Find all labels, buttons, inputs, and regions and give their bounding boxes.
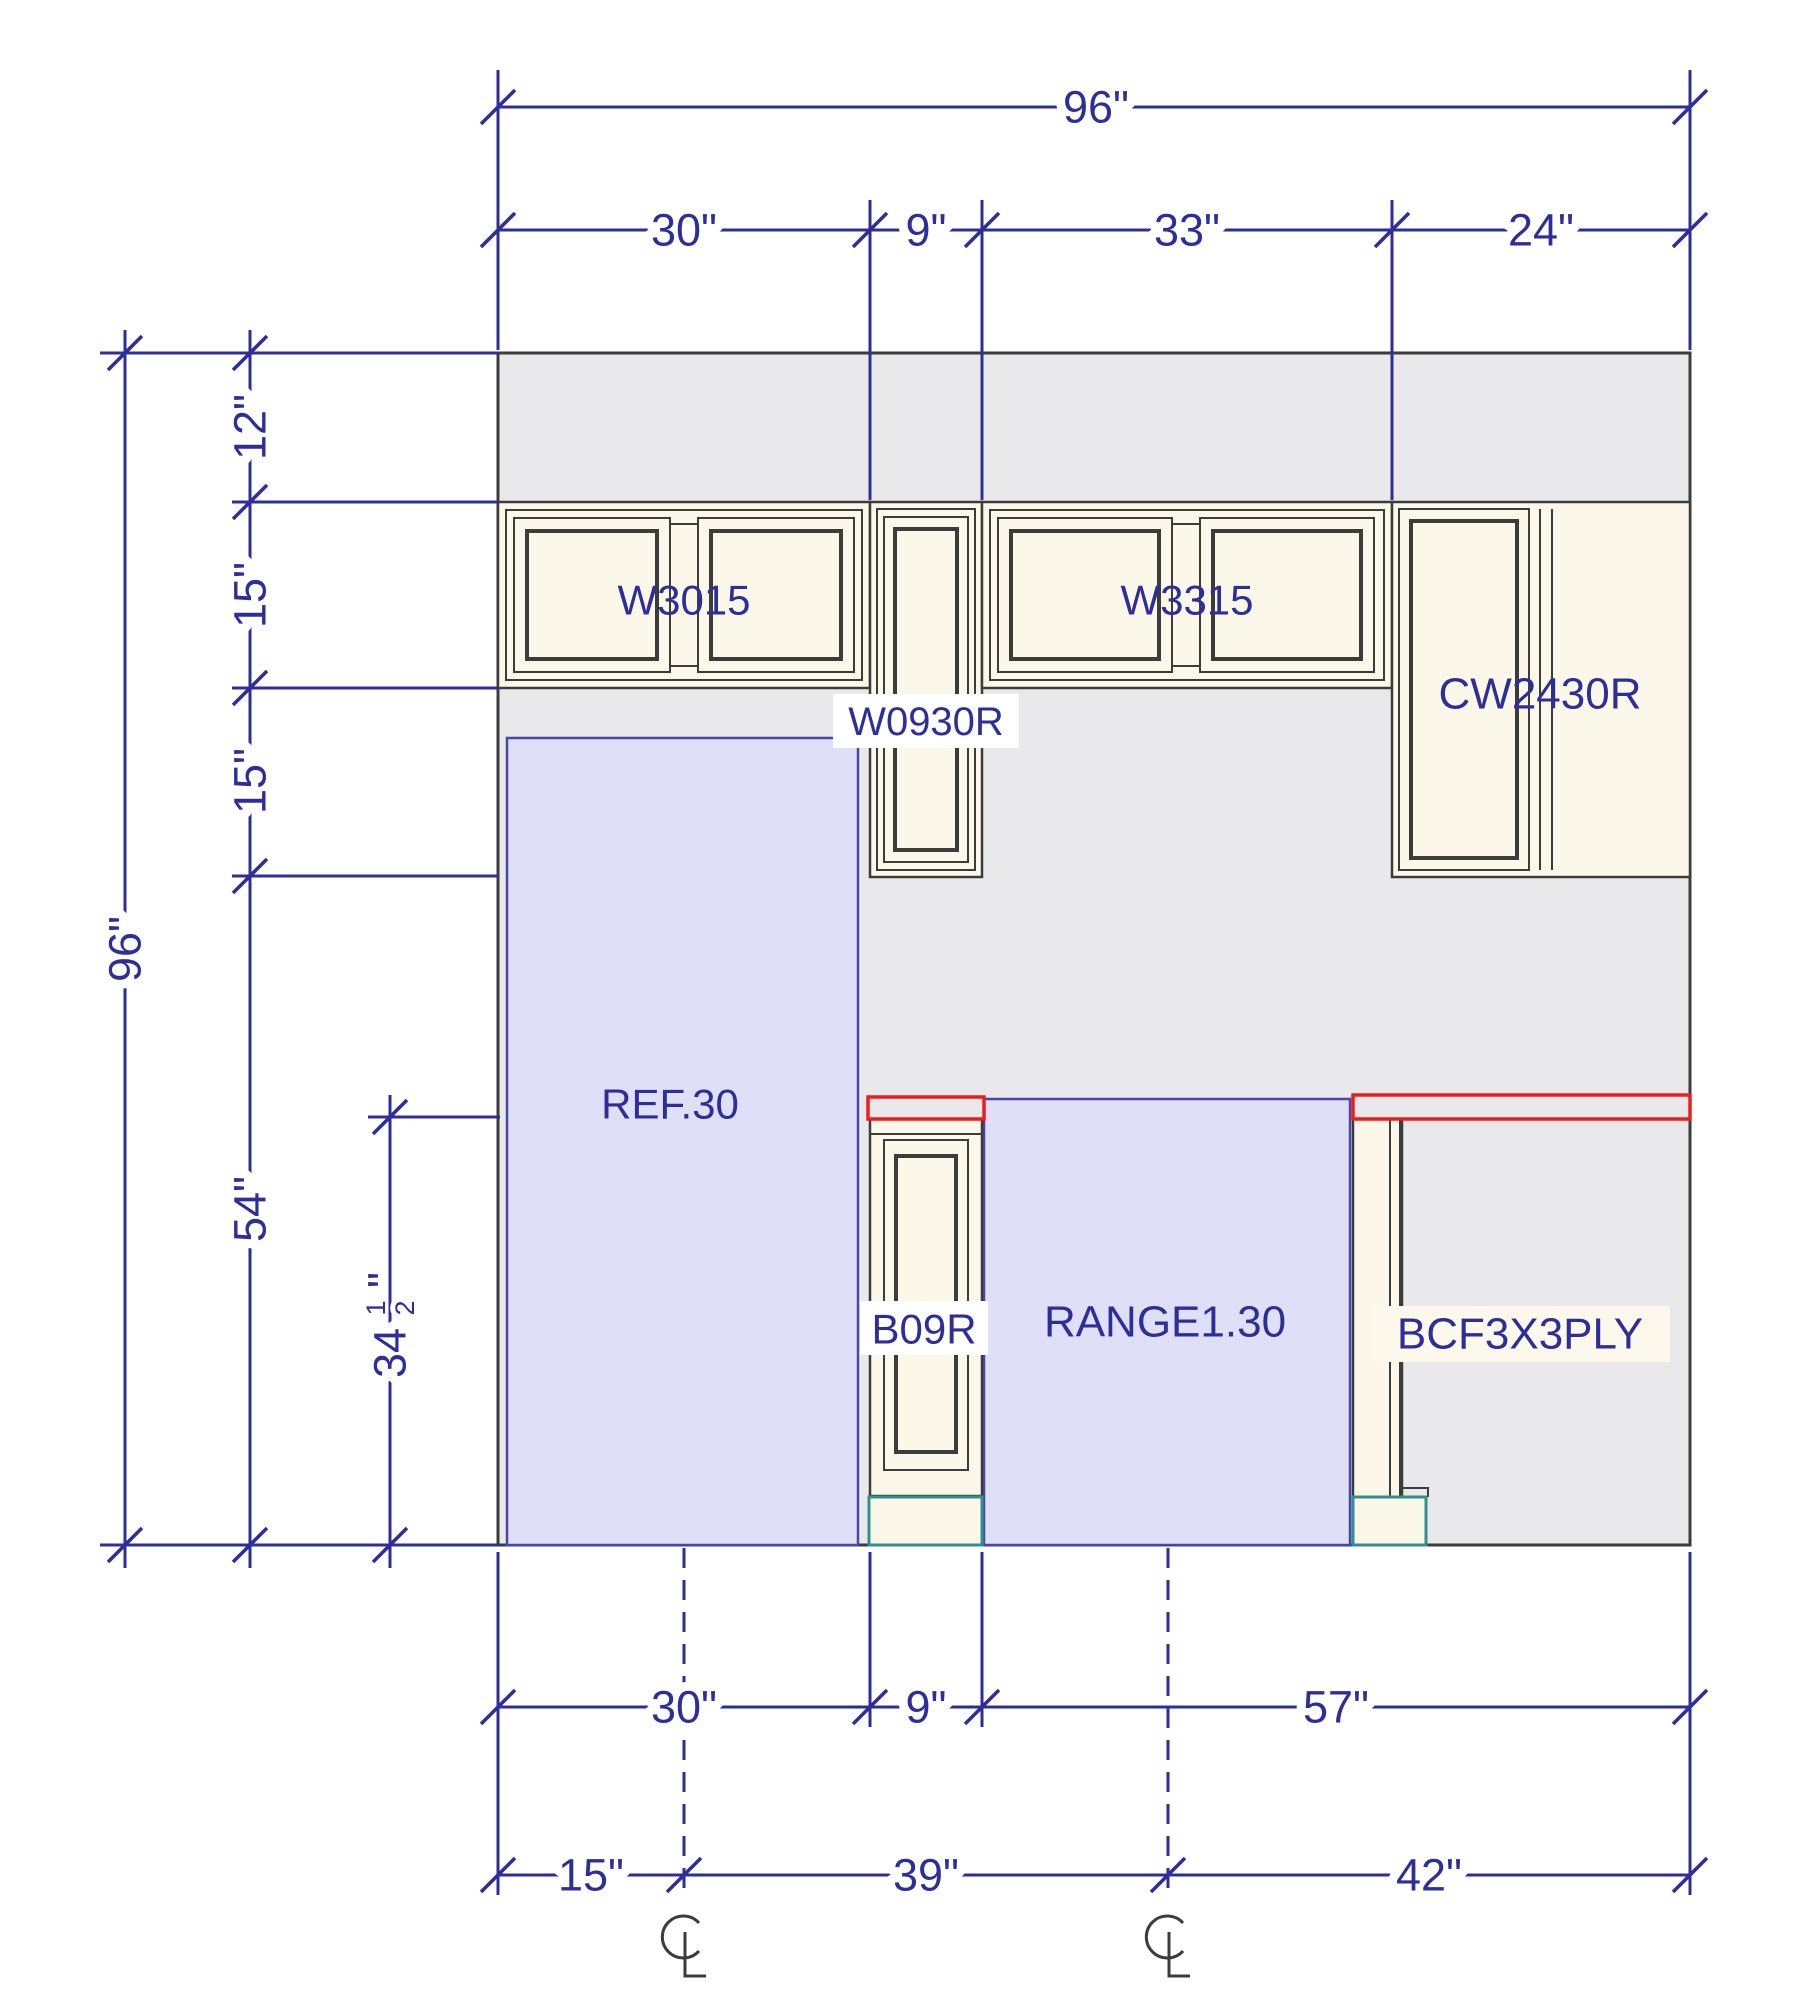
dim-top-33: 33": [1154, 205, 1220, 256]
label-w0930r: W0930R: [848, 700, 1004, 744]
dim-top-30: 30": [651, 205, 717, 256]
label-range130: RANGE1.30: [1044, 1298, 1286, 1347]
bcf-toekick: [1353, 1497, 1426, 1545]
dim-left-34half-num: 1: [361, 1300, 391, 1315]
elevation-drawing: W3015 W0930R W3315 CW2430R REF.30 B09R R…: [0, 0, 1805, 2000]
kitchen-elevation-page: W3015 W0930R W3315 CW2430R REF.30 B09R R…: [0, 0, 1805, 2000]
dim-left-12: 12": [225, 394, 276, 460]
dim-bottom-57: 57": [1303, 1682, 1369, 1733]
left-dimension-lines: [125, 330, 390, 1568]
label-ref30: REF.30: [601, 1081, 739, 1128]
cabinet-w0930r-body: [870, 502, 982, 877]
dim-bottom-15: 15": [558, 1850, 624, 1901]
dim-left-overall: 96": [100, 916, 151, 982]
label-w3315: W3315: [1120, 577, 1253, 624]
centerline-symbol-range: [1146, 1916, 1190, 1976]
left-dimension-ticks: [108, 336, 407, 1562]
label-cw2430r: CW2430R: [1439, 670, 1642, 719]
label-b09r: B09R: [871, 1306, 976, 1353]
dim-bottom-30: 30": [651, 1682, 717, 1733]
dim-top-9: 9": [905, 205, 946, 256]
dim-left-15b: 15": [225, 748, 276, 814]
refrigerator-space: [507, 738, 858, 1545]
label-w3015: W3015: [617, 577, 750, 624]
dim-top-24: 24": [1508, 205, 1574, 256]
label-bcf3x3ply: BCF3X3PLY: [1397, 1310, 1643, 1359]
dim-left-34half-whole: 34: [365, 1328, 416, 1378]
cabinet-b09r-toekick: [869, 1497, 982, 1545]
left-dimension-extension-lines: [100, 353, 500, 1545]
dim-top-total: 96": [1063, 82, 1129, 133]
dim-left-34half-den: 2: [390, 1300, 420, 1315]
dim-left-54: 54": [225, 1176, 276, 1242]
centerline-symbol-ref: [662, 1916, 706, 1976]
dim-left-34half-unit: ": [359, 1272, 410, 1288]
cabinet-w0930r: [870, 502, 982, 877]
dim-bottom-9: 9": [905, 1682, 946, 1733]
dim-bottom-39: 39": [893, 1850, 959, 1901]
dim-left-15a: 15": [225, 562, 276, 628]
dim-bottom-42: 42": [1396, 1850, 1462, 1901]
